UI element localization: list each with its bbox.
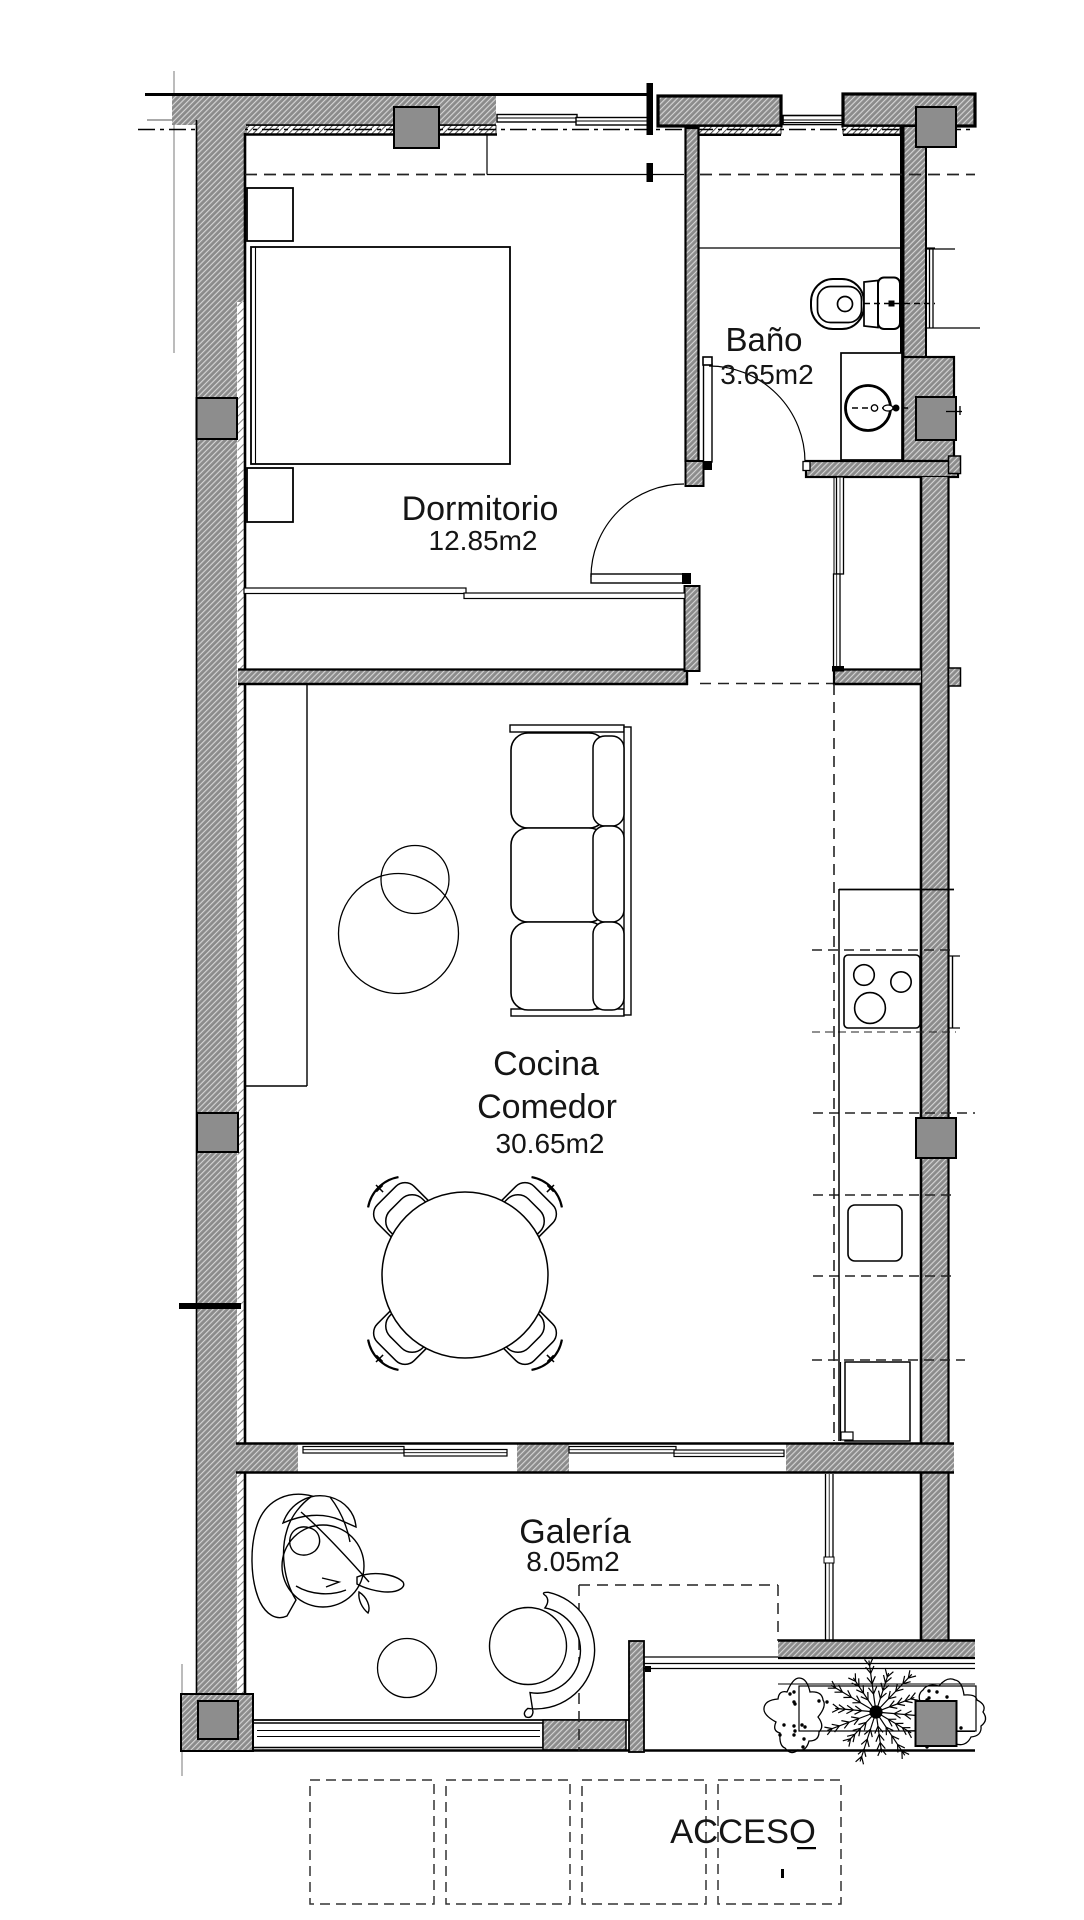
svg-text:30.65m2: 30.65m2: [496, 1128, 605, 1159]
svg-text:ACCESO: ACCESO: [670, 1813, 816, 1851]
svg-text:8.05m2: 8.05m2: [526, 1546, 619, 1577]
svg-text:12.85m2: 12.85m2: [429, 525, 538, 556]
svg-text:3.65m2: 3.65m2: [720, 359, 813, 390]
svg-text:Cocina: Cocina: [493, 1045, 599, 1083]
svg-text:Baño: Baño: [725, 321, 802, 358]
svg-text:Dormitorio: Dormitorio: [402, 490, 559, 528]
svg-text:Comedor: Comedor: [477, 1088, 617, 1126]
